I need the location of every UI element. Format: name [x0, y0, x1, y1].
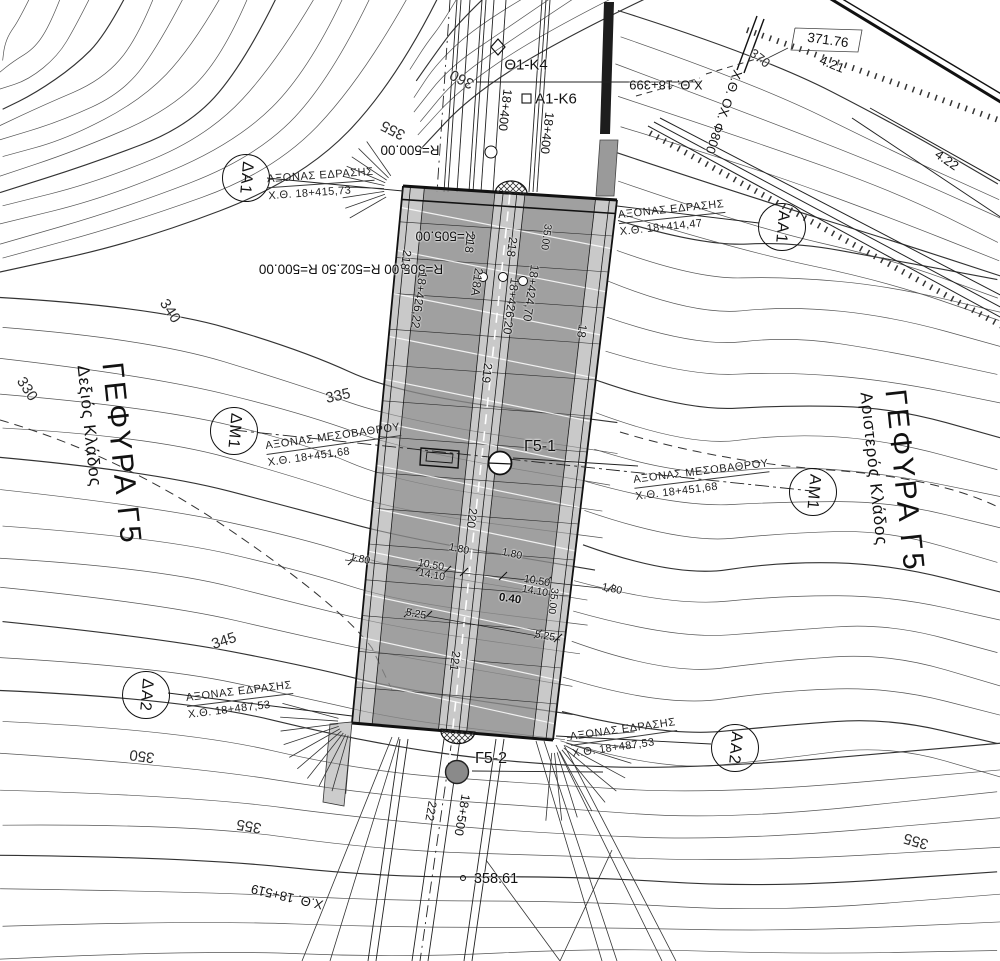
feature-label: Γ5-1: [524, 438, 556, 456]
contour-elevation-label: 345: [209, 629, 238, 653]
chainage-label: 18+400: [537, 111, 556, 154]
contour-elevation-label: 370: [747, 45, 773, 70]
support-marker-label: ΑΑ1: [772, 210, 793, 245]
axis-point-label: 218Α: [468, 267, 486, 297]
chainage-label: 18+500: [451, 793, 472, 837]
axis-annotation: ΑΞΟΝΑΣ ΜΕΣΟΒΑΘΡΟΥΧ.Θ. 18+451,68: [633, 457, 772, 502]
support-marker-label: ΔΜ1: [223, 412, 244, 449]
feature-label: 4.22: [932, 147, 961, 174]
contour-elevation-label: 360: [447, 66, 477, 93]
support-marker-da2: ΔΑ2: [122, 671, 170, 719]
support-marker-label: ΑΜ1: [802, 473, 823, 510]
axis-point-label: 220: [464, 507, 480, 529]
axis-point-label: 218: [462, 232, 479, 254]
axis-point-label: 18: [574, 323, 590, 338]
chainage-label: 18+400: [495, 88, 514, 131]
contour-elevation-label: 330: [13, 374, 41, 404]
support-marker-am1: ΑΜ1: [789, 468, 837, 516]
axis-annotation: ΑΞΟΝΑΣ ΜΕΣΟΒΑΘΡΟΥΧ.Θ. 18+451,68: [265, 421, 404, 469]
curve-radius-label: R=500.00: [381, 143, 440, 158]
support-marker-label: ΑΑ2: [725, 731, 746, 766]
support-marker-label: ΔΑ2: [136, 678, 157, 713]
chainage-label: Θ1-Κ4: [504, 57, 547, 74]
support-marker-label: ΔΑ1: [236, 161, 257, 196]
support-marker-aa1: ΑΑ1: [758, 203, 806, 251]
axis-point-label: 218: [504, 236, 521, 258]
contour-elevation-label: 355: [235, 815, 263, 836]
dimension-label: 1.80: [448, 541, 470, 557]
axis-point-label: 18+424,70: [520, 264, 542, 322]
contour-elevation-label: 355: [902, 829, 931, 852]
axis-annotation: ΑΞΟΝΑΣ ΕΔΡΑΣΗΣΧ.Θ. 18+415,73: [267, 166, 375, 202]
axis-annotation: ΑΞΟΝΑΣ ΕΔΡΑΣΗΣΧ.Θ. 18+487,53: [185, 679, 294, 721]
support-marker-dm1: ΔΜ1: [210, 407, 258, 455]
chainage-label: Α1-Κ6: [535, 91, 577, 108]
axis-annotation: ΑΞΟΝΑΣ ΕΔΡΑΣΗΣΧ.Θ. 18+414,47: [617, 198, 726, 238]
bridge-title-right: ΓΕΦΥΡΑ Γ5Αριστερός Κλάδος: [856, 387, 931, 576]
axis-point-label: 221: [447, 650, 464, 672]
dimension-label: 5.25: [405, 606, 427, 621]
chainage-label: Χ.Θ. 18+399: [629, 78, 702, 93]
chainage-label: Χ.Θ. 18+519: [250, 881, 325, 912]
axis-point-label: 18+426,20: [500, 277, 522, 335]
contour-elevation-label: 340: [156, 296, 184, 326]
bridge-title-left: ΓΕΦΥΡΑ Γ5Δεξιός Κλάδος: [73, 360, 148, 549]
feature-label: 358.61: [474, 871, 518, 887]
dimension-label: 1.80: [349, 551, 371, 567]
bridge-site-plan: 360355340330335345350355355370R=500.00R=…: [0, 0, 1000, 961]
axis-annotation: ΑΞΟΝΑΣ ΕΔΡΑΣΗΣΧ.Θ. 18+487,53: [569, 716, 679, 760]
axis-point-label: 35.00: [538, 223, 554, 251]
support-marker-da1: ΔΑ1: [222, 154, 270, 202]
axis-point-label: 222: [422, 800, 439, 822]
dimension-label: 1.80: [501, 546, 523, 562]
contour-elevation-label: 350: [128, 746, 155, 766]
contour-elevation-label: 355: [378, 117, 408, 144]
dimension-label: 0.40: [498, 592, 522, 607]
axis-point-label: 18+426,22: [408, 271, 430, 329]
feature-label: Γ5-2: [475, 750, 507, 768]
labels-layer: 360355340330335345350355355370R=500.00R=…: [0, 0, 1000, 961]
contour-elevation-label: 335: [324, 385, 352, 407]
feature-label: 371.76: [807, 30, 850, 51]
axis-point-label: 219: [479, 362, 495, 384]
feature-label: 4.21: [817, 52, 846, 75]
dimension-label: 1.80: [601, 581, 623, 597]
axis-point-label: 218: [398, 249, 415, 271]
dimension-label: 5.25: [534, 628, 556, 643]
support-marker-aa2: ΑΑ2: [711, 724, 759, 772]
chainage-label: Χ.Θ. ΟΧ. Φ800: [703, 68, 746, 156]
